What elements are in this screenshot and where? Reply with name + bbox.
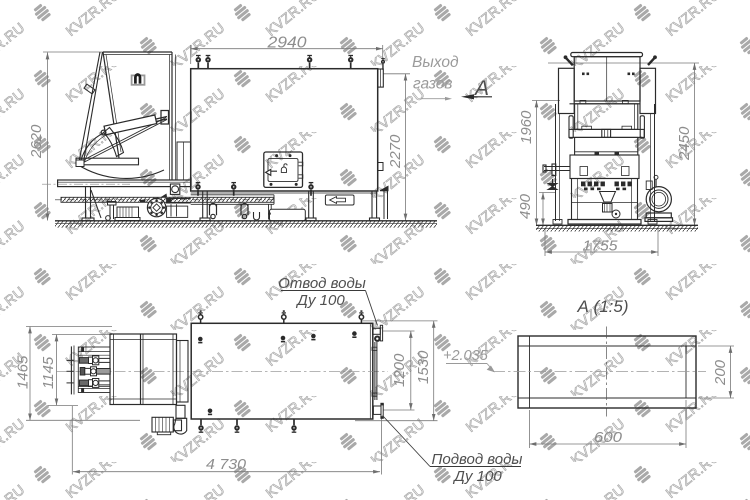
svg-text:2450: 2450 [676,126,693,161]
svg-text:1200: 1200 [391,353,408,387]
svg-text:200: 200 [712,359,729,386]
svg-text:490: 490 [517,193,534,219]
svg-text:газов: газов [413,76,453,93]
svg-text:4 730: 4 730 [206,456,247,473]
svg-text:2940: 2940 [266,35,306,52]
svg-text:А: А [473,77,489,100]
svg-text:1465: 1465 [15,355,32,389]
svg-text:Отвод воды: Отвод воды [278,275,366,292]
svg-text:1755: 1755 [583,239,619,255]
svg-text:+2.035: +2.035 [443,348,489,364]
svg-text:А (1:5): А (1:5) [576,297,628,316]
svg-text:Выход: Выход [412,54,459,71]
svg-text:1530: 1530 [415,350,432,384]
svg-text:2270: 2270 [387,134,404,169]
svg-text:Подвод воды: Подвод воды [432,451,523,468]
svg-text:1145: 1145 [40,356,57,389]
svg-text:Ду 100: Ду 100 [452,468,502,485]
svg-text:2620: 2620 [28,124,45,159]
svg-text:600: 600 [594,429,623,446]
svg-text:1960: 1960 [518,110,535,144]
svg-text:Ду 100: Ду 100 [295,292,345,309]
